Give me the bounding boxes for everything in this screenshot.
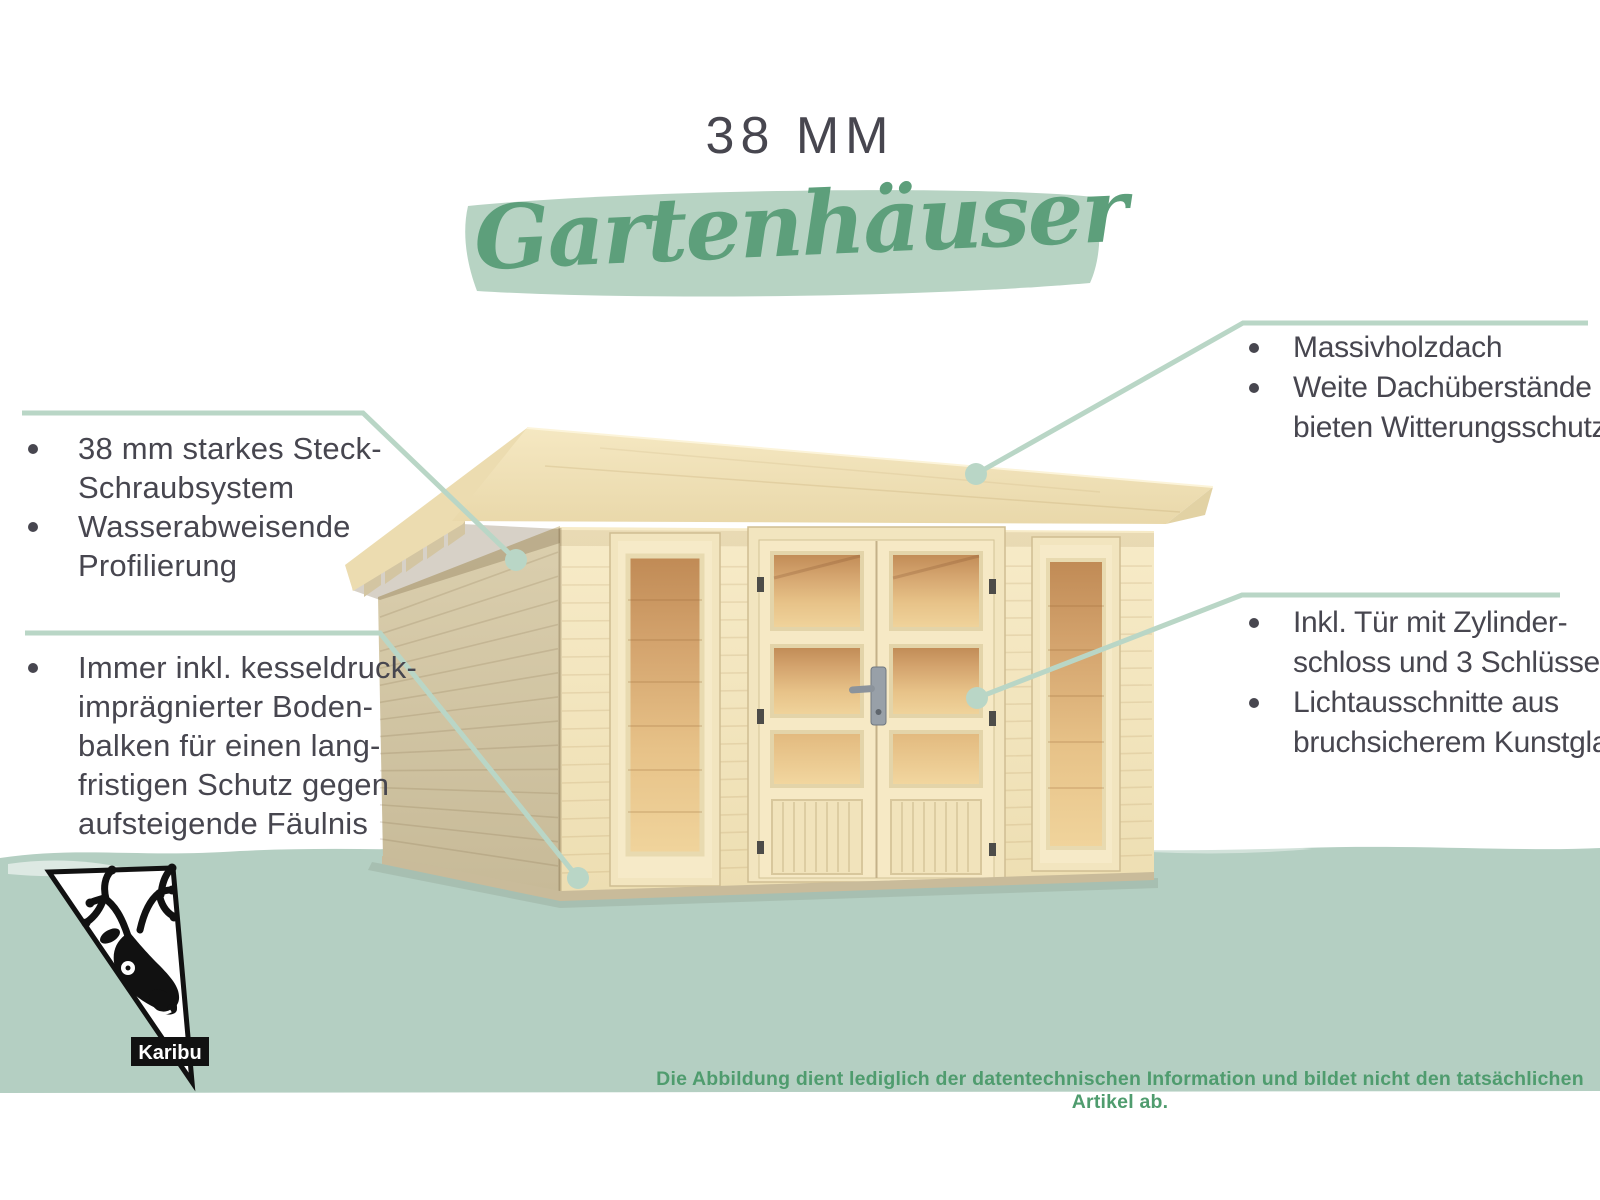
callout-text-right-top: Massivholzdach Weite Dachüberstände biet… bbox=[1247, 328, 1600, 448]
callout-dot-door bbox=[966, 687, 988, 709]
callout-line-item: fristigen Schutz gegen bbox=[26, 765, 417, 804]
callout-line-item: aufsteigende Fäulnis bbox=[26, 804, 417, 843]
poster: Karibu 38 MM Gartenhäuser 38 mm starkes … bbox=[0, 0, 1600, 1200]
callout-line-item: 38 mm starkes Steck- bbox=[26, 429, 382, 468]
right-window bbox=[1032, 537, 1120, 871]
callout-dot-roof-left bbox=[505, 549, 527, 571]
callout-line-item: schloss und 3 Schlüsseln bbox=[1247, 643, 1600, 683]
double-door bbox=[748, 527, 1005, 882]
callout-line-item: Massivholzdach bbox=[1247, 328, 1600, 368]
callout-dot-roof-right bbox=[965, 463, 987, 485]
callout-line-item: Profilierung bbox=[26, 546, 382, 585]
callout-text-left-bottom: Immer inkl. kesseldruck- imprägnierter B… bbox=[26, 648, 417, 843]
callout-text-right-middle: Inkl. Tür mit Zylinder- schloss und 3 Sc… bbox=[1247, 603, 1600, 763]
garden-shed bbox=[345, 428, 1213, 908]
callout-line-item: Schraubsystem bbox=[26, 468, 382, 507]
callout-text-left-top: 38 mm starkes Steck- Schraubsystem Wasse… bbox=[26, 429, 382, 585]
callout-dot-foundation bbox=[567, 867, 589, 889]
callout-line-item: Inkl. Tür mit Zylinder- bbox=[1247, 603, 1600, 643]
callout-line-item: bruchsicherem Kunstglas bbox=[1247, 723, 1600, 763]
callout-line-item: imprägnierter Boden- bbox=[26, 687, 417, 726]
left-window bbox=[610, 533, 720, 886]
callout-line-item: Weite Dachüberstände bbox=[1247, 368, 1600, 408]
logo-wordmark: Karibu bbox=[138, 1042, 201, 1064]
callout-line-item: Wasserabweisende bbox=[26, 507, 382, 546]
disclaimer-text: Die Abbildung dient lediglich der datent… bbox=[650, 1068, 1590, 1114]
callout-line-item: Immer inkl. kesseldruck- bbox=[26, 648, 417, 687]
callout-line-item: balken für einen lang- bbox=[26, 726, 417, 765]
callout-line-item: Lichtausschnitte aus bbox=[1247, 683, 1600, 723]
callout-line-item: bieten Witterungsschutz bbox=[1247, 408, 1600, 448]
